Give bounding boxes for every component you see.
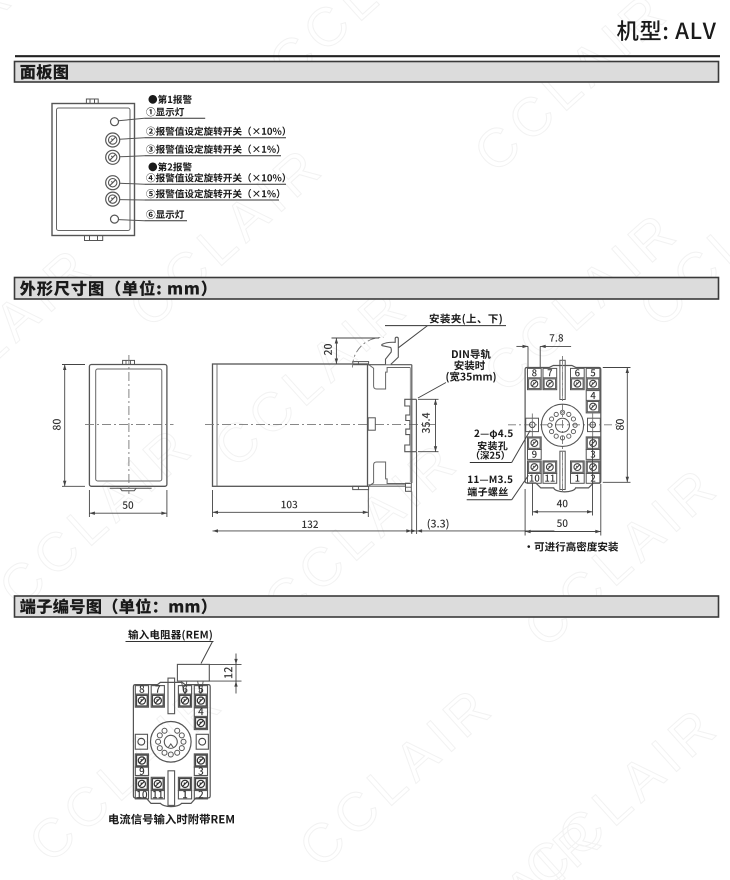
svg-text:CCLAIR: CCLAIR — [18, 669, 237, 874]
svg-text:CCLAIR: CCLAIR — [203, 274, 422, 479]
svg-text:CCLAIR: CCLAIR — [288, 674, 507, 879]
svg-text:CCLAIR: CCLAIR — [0, 234, 106, 439]
svg-text:CCLAIR: CCLAIR — [513, 454, 730, 659]
svg-text:CCLAIR: CCLAIR — [0, 0, 26, 169]
svg-text:CCLAIR: CCLAIR — [398, 804, 617, 880]
svg-text:CCLAIR: CCLAIR — [0, 414, 206, 619]
